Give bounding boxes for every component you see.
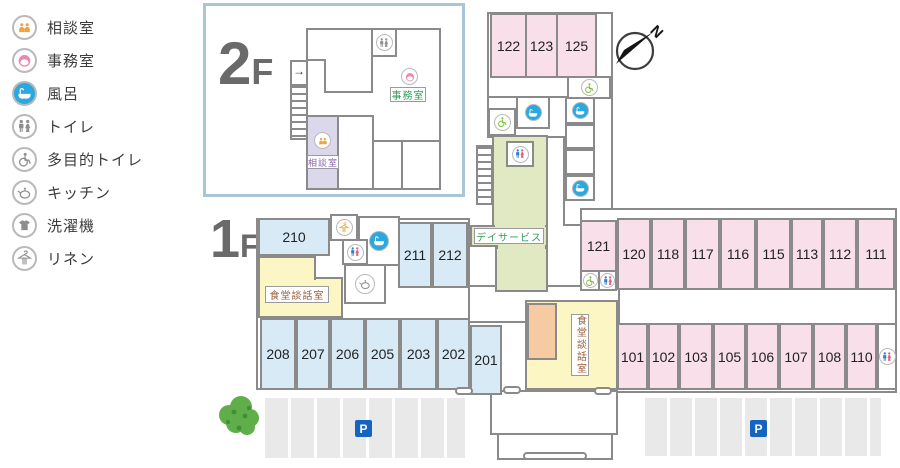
linen-room — [330, 214, 358, 241]
room-122: 122 — [490, 13, 527, 78]
legend-item-laundry: 洗濯機 — [12, 212, 143, 238]
floor-2f-title: 2F — [218, 34, 273, 94]
room-101: 101 — [617, 323, 648, 390]
room-105: 105 — [713, 323, 746, 390]
accessible-toilet-icon — [583, 273, 598, 288]
bath-icon — [12, 81, 37, 106]
linen-icon — [336, 219, 353, 236]
toilet-icon — [376, 34, 393, 51]
room-203: 203 — [400, 318, 437, 390]
floor-2f-inset: 2F → 相談室 事務室 — [203, 3, 465, 197]
room-120: 120 — [617, 218, 651, 290]
room-106: 106 — [746, 323, 779, 390]
linen-icon — [12, 246, 37, 271]
parking-sign: P — [355, 420, 372, 437]
bath-icon — [369, 231, 389, 251]
office-icon — [12, 48, 37, 73]
bath-icon — [525, 104, 542, 121]
room-small — [565, 124, 595, 149]
room-211: 211 — [398, 222, 432, 288]
toilet-icon — [879, 348, 896, 365]
legend-item-accessible-toilet: 多目的トイレ — [12, 146, 143, 172]
dining-room2-label: 食堂談話室 — [571, 314, 589, 376]
consult-room-label: 相談室 — [307, 155, 339, 169]
consult-icon — [12, 15, 37, 40]
floor-plan-canvas: 相談室 事務室 風呂 トイレ 多目的トイレ キッチン 洗濯機 リネン — [0, 0, 900, 468]
entrance-hall — [490, 390, 618, 435]
legend: 相談室 事務室 風呂 トイレ 多目的トイレ キッチン 洗濯機 リネン — [12, 14, 143, 271]
room-123: 123 — [525, 13, 558, 78]
bath-room — [516, 96, 550, 129]
toilet-icon — [512, 146, 529, 163]
legend-item-toilet: トイレ — [12, 113, 143, 139]
accessible-toilet-icon — [12, 147, 37, 172]
legend-label: 風呂 — [47, 83, 79, 104]
bath-icon — [572, 102, 589, 119]
room-2f-br2 — [401, 140, 441, 190]
compass-icon: N — [608, 18, 666, 76]
room-117: 117 — [685, 218, 720, 290]
door — [594, 387, 612, 395]
legend-label: リネン — [47, 248, 95, 269]
room-118: 118 — [651, 218, 685, 290]
room-111: 111 — [857, 218, 895, 290]
door — [503, 386, 521, 394]
office-icon — [401, 68, 418, 85]
room-125: 125 — [556, 13, 597, 78]
legend-label: 事務室 — [47, 50, 95, 71]
tree-icon — [214, 390, 262, 438]
legend-label: キッチン — [47, 182, 111, 203]
room-115: 115 — [756, 218, 791, 290]
room-102: 102 — [648, 323, 679, 390]
consult-room-2f — [306, 115, 339, 190]
room-201: 201 — [470, 325, 502, 395]
toilet-room — [598, 270, 617, 291]
room-208: 208 — [260, 318, 296, 390]
accessible-toilet-icon — [581, 79, 598, 96]
room-107: 107 — [779, 323, 813, 390]
bath-icon — [572, 180, 589, 197]
room-202: 202 — [437, 318, 470, 390]
toilet-room — [506, 141, 534, 167]
accessible-toilet-room — [580, 270, 600, 291]
legend-label: トイレ — [47, 116, 95, 137]
room-103: 103 — [679, 323, 713, 390]
room-205: 205 — [365, 318, 400, 390]
parking-lot-west: P — [265, 398, 465, 458]
wall — [324, 59, 326, 93]
dining-room-sub — [527, 303, 557, 360]
toilet-room — [877, 323, 897, 390]
bath-room — [565, 97, 595, 124]
area-seam — [498, 243, 545, 251]
legend-item-kitchen: キッチン — [12, 179, 143, 205]
door — [455, 387, 473, 395]
parking-sign: P — [750, 420, 767, 437]
legend-item-consult: 相談室 — [12, 14, 143, 40]
accessible-toilet-room — [567, 76, 611, 99]
room-2f-br1 — [372, 140, 403, 190]
toilet-room-2f — [371, 28, 397, 57]
legend-label: 多目的トイレ — [47, 149, 143, 170]
room-110: 110 — [846, 323, 877, 390]
legend-item-office: 事務室 — [12, 47, 143, 73]
room-206: 206 — [330, 318, 365, 390]
room-113: 113 — [791, 218, 823, 290]
legend-label: 相談室 — [47, 17, 95, 38]
day-service-area-lower — [495, 247, 548, 292]
accessible-toilet-icon — [494, 114, 511, 131]
stairs-1f — [476, 145, 493, 205]
floor-1f-number: 1 — [210, 212, 240, 266]
entry-arrow: → — [293, 64, 305, 78]
wall — [324, 91, 373, 93]
kitchen-alcove — [344, 264, 386, 304]
room-108: 108 — [813, 323, 846, 390]
laundry-icon — [12, 213, 37, 238]
room-210: 210 — [258, 218, 330, 256]
door — [523, 452, 587, 460]
accessible-toilet-room — [488, 108, 516, 136]
consult-icon — [314, 132, 331, 149]
parking-lot-east: P — [645, 398, 881, 456]
wall — [306, 59, 326, 61]
toilet-icon — [12, 114, 37, 139]
room-207: 207 — [296, 318, 330, 390]
bath-room — [565, 175, 595, 201]
room-212: 212 — [432, 222, 468, 288]
dining-room-label: 食堂談話室 — [265, 286, 329, 303]
floor-2f-number: 2 — [218, 34, 251, 94]
kitchen-icon — [12, 180, 37, 205]
floor-1f-title: 1F — [210, 212, 260, 266]
kitchen-icon — [355, 274, 375, 294]
legend-item-linen: リネン — [12, 245, 143, 271]
room-112: 112 — [823, 218, 857, 290]
room-121: 121 — [580, 220, 617, 272]
room-small — [565, 149, 595, 175]
office-room-label: 事務室 — [390, 87, 426, 102]
floor-2f-suffix: F — [251, 54, 273, 90]
toilet-room — [342, 239, 368, 265]
legend-label: 洗濯機 — [47, 215, 95, 236]
legend-item-bath: 風呂 — [12, 80, 143, 106]
room-2f-mid — [337, 115, 374, 190]
toilet-icon — [600, 273, 615, 288]
room-116: 116 — [720, 218, 756, 290]
day-service-label: デイサービス — [474, 228, 544, 244]
toilet-icon — [347, 244, 364, 261]
